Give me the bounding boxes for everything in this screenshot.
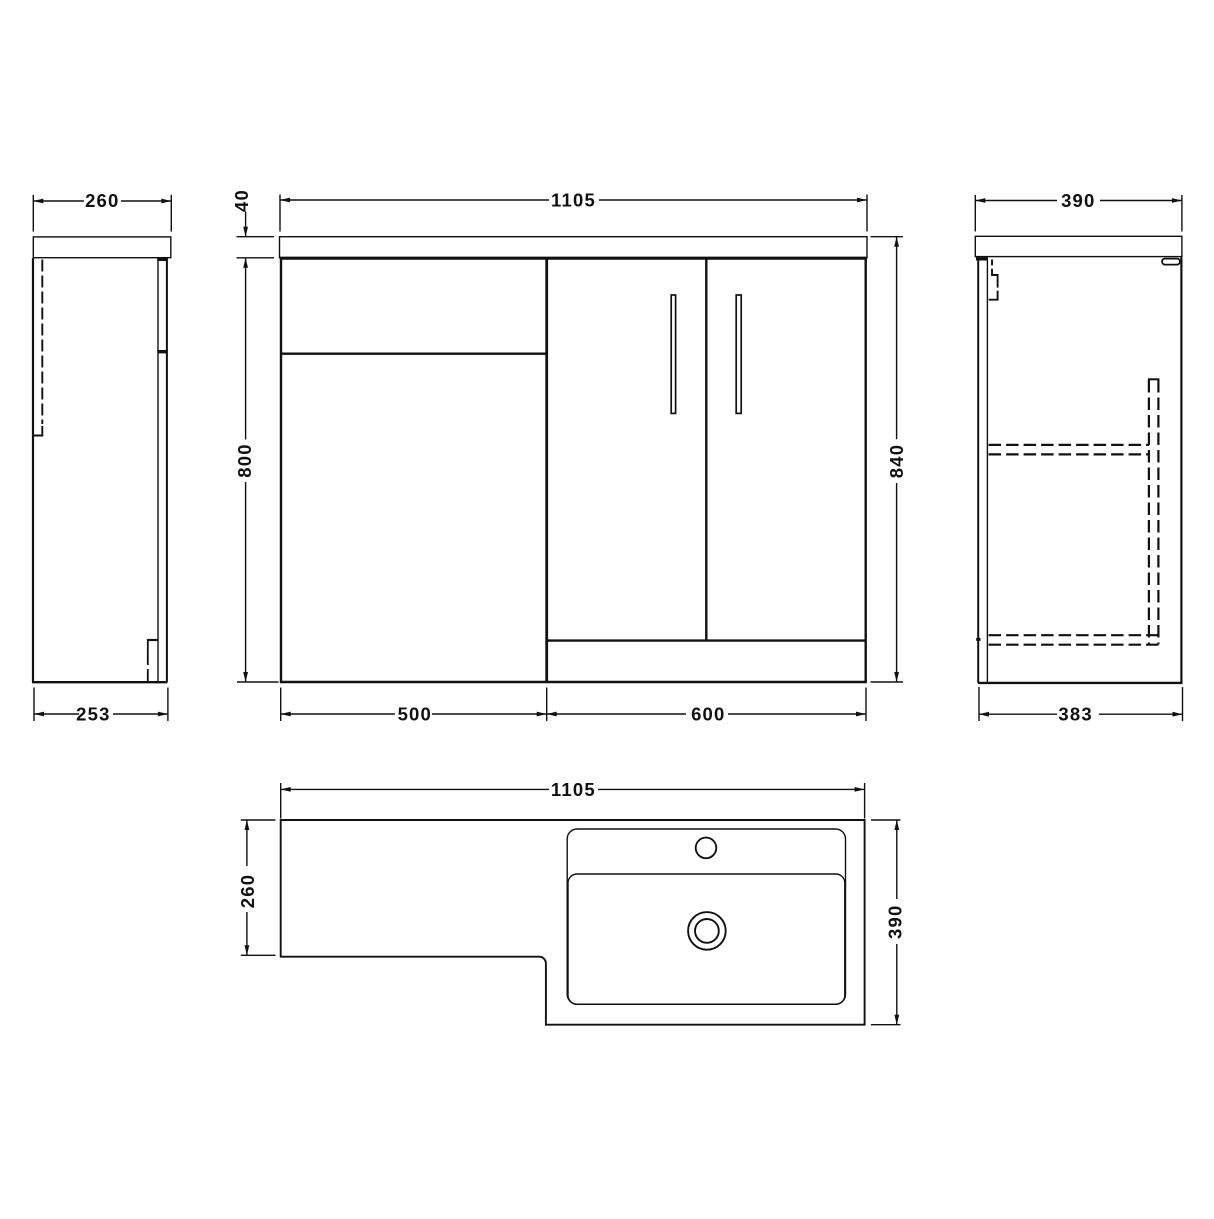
svg-text:253: 253 bbox=[76, 703, 110, 724]
svg-text:1105: 1105 bbox=[551, 190, 596, 211]
svg-text:600: 600 bbox=[691, 704, 725, 725]
svg-text:390: 390 bbox=[884, 905, 905, 939]
svg-text:800: 800 bbox=[234, 443, 255, 477]
svg-text:500: 500 bbox=[398, 704, 432, 725]
svg-text:40: 40 bbox=[231, 189, 252, 212]
svg-text:260: 260 bbox=[237, 874, 258, 908]
svg-text:840: 840 bbox=[886, 444, 907, 478]
svg-text:260: 260 bbox=[85, 190, 119, 211]
svg-text:1105: 1105 bbox=[551, 779, 596, 800]
svg-text:383: 383 bbox=[1058, 704, 1092, 725]
svg-text:390: 390 bbox=[1061, 190, 1095, 211]
